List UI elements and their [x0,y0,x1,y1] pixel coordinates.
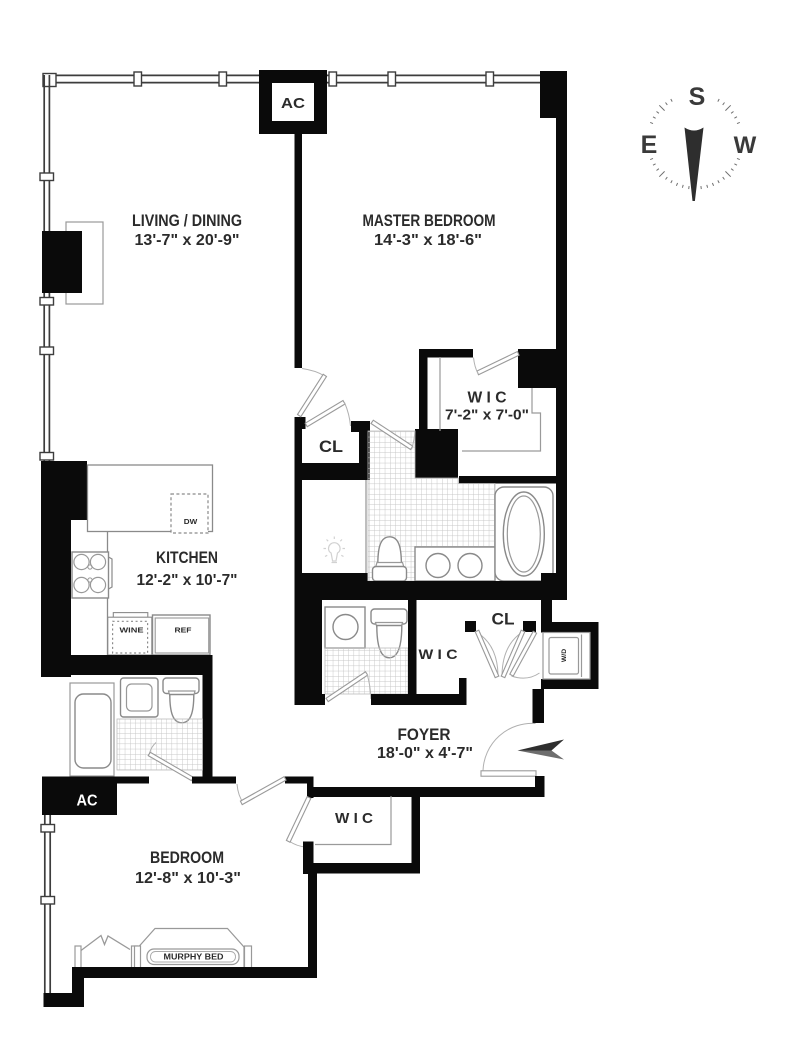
svg-text:12'-2" x 10'-7": 12'-2" x 10'-7" [137,572,238,589]
svg-text:14'-3" x 18'-6": 14'-3" x 18'-6" [374,232,482,249]
svg-text:W I C: W I C [419,646,458,662]
svg-text:REF: REF [175,626,192,635]
svg-text:WINE: WINE [120,626,144,635]
svg-text:W I C: W I C [335,810,373,827]
svg-text:AC: AC [281,95,305,112]
svg-text:FOYER: FOYER [398,725,451,744]
svg-text:MASTER BEDROOM: MASTER BEDROOM [363,211,496,230]
svg-text:W I C: W I C [468,390,507,407]
svg-text:S: S [689,83,706,111]
svg-text:13'-7" x 20'-9": 13'-7" x 20'-9" [135,232,240,249]
svg-text:CL: CL [319,437,343,456]
svg-text:E: E [641,131,658,159]
svg-text:W: W [734,132,757,159]
svg-text:MURPHY BED: MURPHY BED [164,953,224,962]
svg-text:AC: AC [77,793,98,810]
svg-text:W/D: W/D [561,649,568,662]
svg-text:DW: DW [184,517,198,526]
svg-text:KITCHEN: KITCHEN [156,548,218,567]
svg-text:CL: CL [492,610,515,629]
svg-text:18'-0" x 4'-7": 18'-0" x 4'-7" [377,745,473,762]
svg-text:LIVING / DINING: LIVING / DINING [132,211,242,230]
svg-text:BEDROOM: BEDROOM [150,848,224,867]
svg-text:7'-2" x 7'-0": 7'-2" x 7'-0" [445,408,529,424]
svg-text:12'-8" x 10'-3": 12'-8" x 10'-3" [135,870,241,887]
